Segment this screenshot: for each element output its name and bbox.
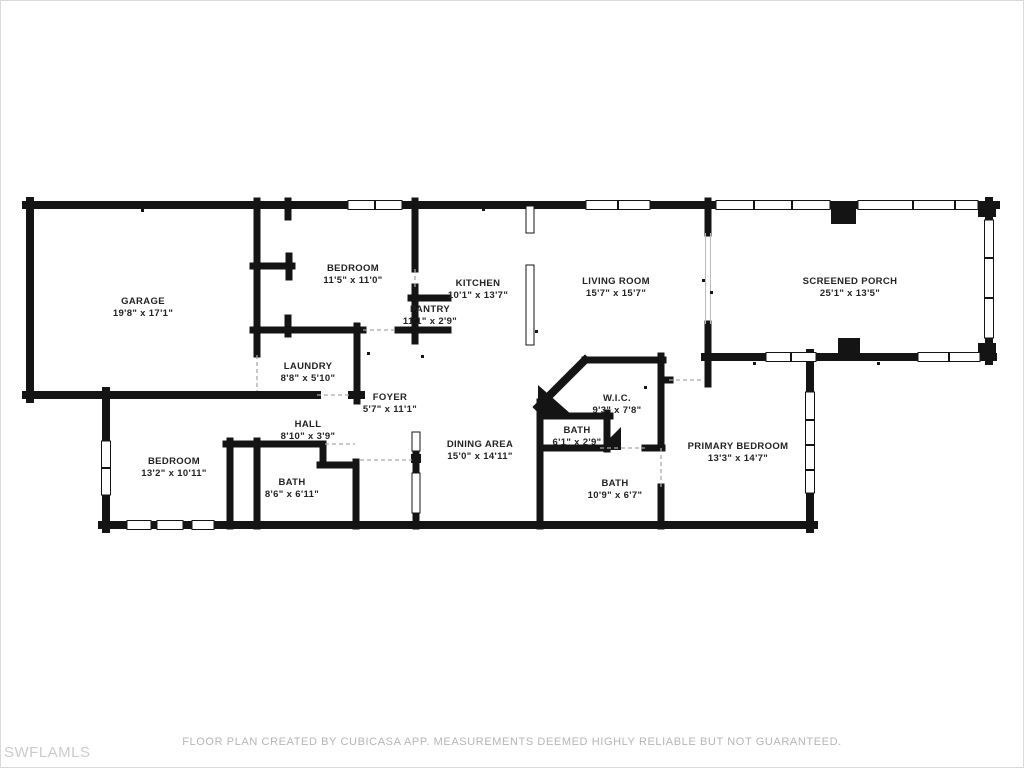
room-name: FOYER xyxy=(363,392,417,404)
room-label-bath-primary: BATH 10'9" x 6'7" xyxy=(588,478,643,502)
room-name: BATH xyxy=(552,425,601,437)
room-name: PANTRY xyxy=(403,304,457,316)
room-label-bath-small: BATH 6'1" x 2'9" xyxy=(552,425,601,449)
floorplan-drawing xyxy=(0,0,1024,768)
room-label-wic: W.I.C. 9'3" x 7'8" xyxy=(592,393,641,417)
room-dims: 11'5" x 11'0" xyxy=(323,275,382,287)
room-dims: 5'7" x 11'1" xyxy=(363,404,417,416)
room-dims: 13'2" x 10'11" xyxy=(141,468,206,480)
room-name: BEDROOM xyxy=(323,263,382,275)
room-label-bedroom-2: BEDROOM 13'2" x 10'11" xyxy=(141,456,206,480)
room-dims: 6'1" x 2'9" xyxy=(552,437,601,449)
room-name: GARAGE xyxy=(113,296,173,308)
room-label-living-room: LIVING ROOM 15'7" x 15'7" xyxy=(582,276,650,300)
room-label-primary-bedroom: PRIMARY BEDROOM 13'3" x 14'7" xyxy=(688,441,789,465)
room-label-foyer: FOYER 5'7" x 11'1" xyxy=(363,392,417,416)
room-name: HALL xyxy=(281,419,336,431)
porch-slider-opening xyxy=(706,233,711,324)
room-dims: 8'8" x 5'10" xyxy=(281,373,336,385)
room-name: LAUNDRY xyxy=(281,361,336,373)
room-name: BEDROOM xyxy=(141,456,206,468)
room-label-dining-area: DINING AREA 15'0" x 14'11" xyxy=(447,439,513,463)
room-name: KITCHEN xyxy=(448,278,508,290)
room-label-hall: HALL 8'10" x 3'9" xyxy=(281,419,336,443)
room-dims: 25'1" x 13'5" xyxy=(803,288,898,300)
room-name: SCREENED PORCH xyxy=(803,276,898,288)
room-dims: 15'0" x 14'11" xyxy=(447,451,513,463)
window-mullions xyxy=(101,200,994,470)
room-dims: 10'1" x 13'7" xyxy=(448,290,508,302)
room-dims: 8'10" x 3'9" xyxy=(281,431,336,443)
room-label-garage: GARAGE 19'8" x 17'1" xyxy=(113,296,173,320)
room-dims: 10'9" x 6'7" xyxy=(588,490,643,502)
room-dims: 8'6" x 6'11" xyxy=(265,489,319,501)
room-dims: 11'1" x 2'9" xyxy=(403,316,457,328)
room-dims: 15'7" x 15'7" xyxy=(582,288,650,300)
disclaimer-text: FLOOR PLAN CREATED BY CUBICASA APP. MEAS… xyxy=(0,736,1024,748)
floorplan-canvas: GARAGE 19'8" x 17'1" BEDROOM 11'5" x 11'… xyxy=(0,0,1024,768)
room-dims: 13'3" x 14'7" xyxy=(688,453,789,465)
room-name: W.I.C. xyxy=(592,393,641,405)
room-name: PRIMARY BEDROOM xyxy=(688,441,789,453)
porch-posts xyxy=(411,201,996,463)
room-label-bath: BATH 8'6" x 6'11" xyxy=(265,477,319,501)
room-label-laundry: LAUNDRY 8'8" x 5'10" xyxy=(281,361,336,385)
room-label-bedroom: BEDROOM 11'5" x 11'0" xyxy=(323,263,382,287)
mls-watermark: SWFLAMLS xyxy=(4,744,91,761)
room-name: DINING AREA xyxy=(447,439,513,451)
room-dims: 9'3" x 7'8" xyxy=(592,405,641,417)
room-name: LIVING ROOM xyxy=(582,276,650,288)
windows xyxy=(102,201,994,530)
room-label-screened-porch: SCREENED PORCH 25'1" x 13'5" xyxy=(803,276,898,300)
room-name: BATH xyxy=(588,478,643,490)
room-label-kitchen: KITCHEN 10'1" x 13'7" xyxy=(448,278,508,302)
room-name: BATH xyxy=(265,477,319,489)
room-label-pantry: PANTRY 11'1" x 2'9" xyxy=(403,304,457,328)
room-dims: 19'8" x 17'1" xyxy=(113,308,173,320)
